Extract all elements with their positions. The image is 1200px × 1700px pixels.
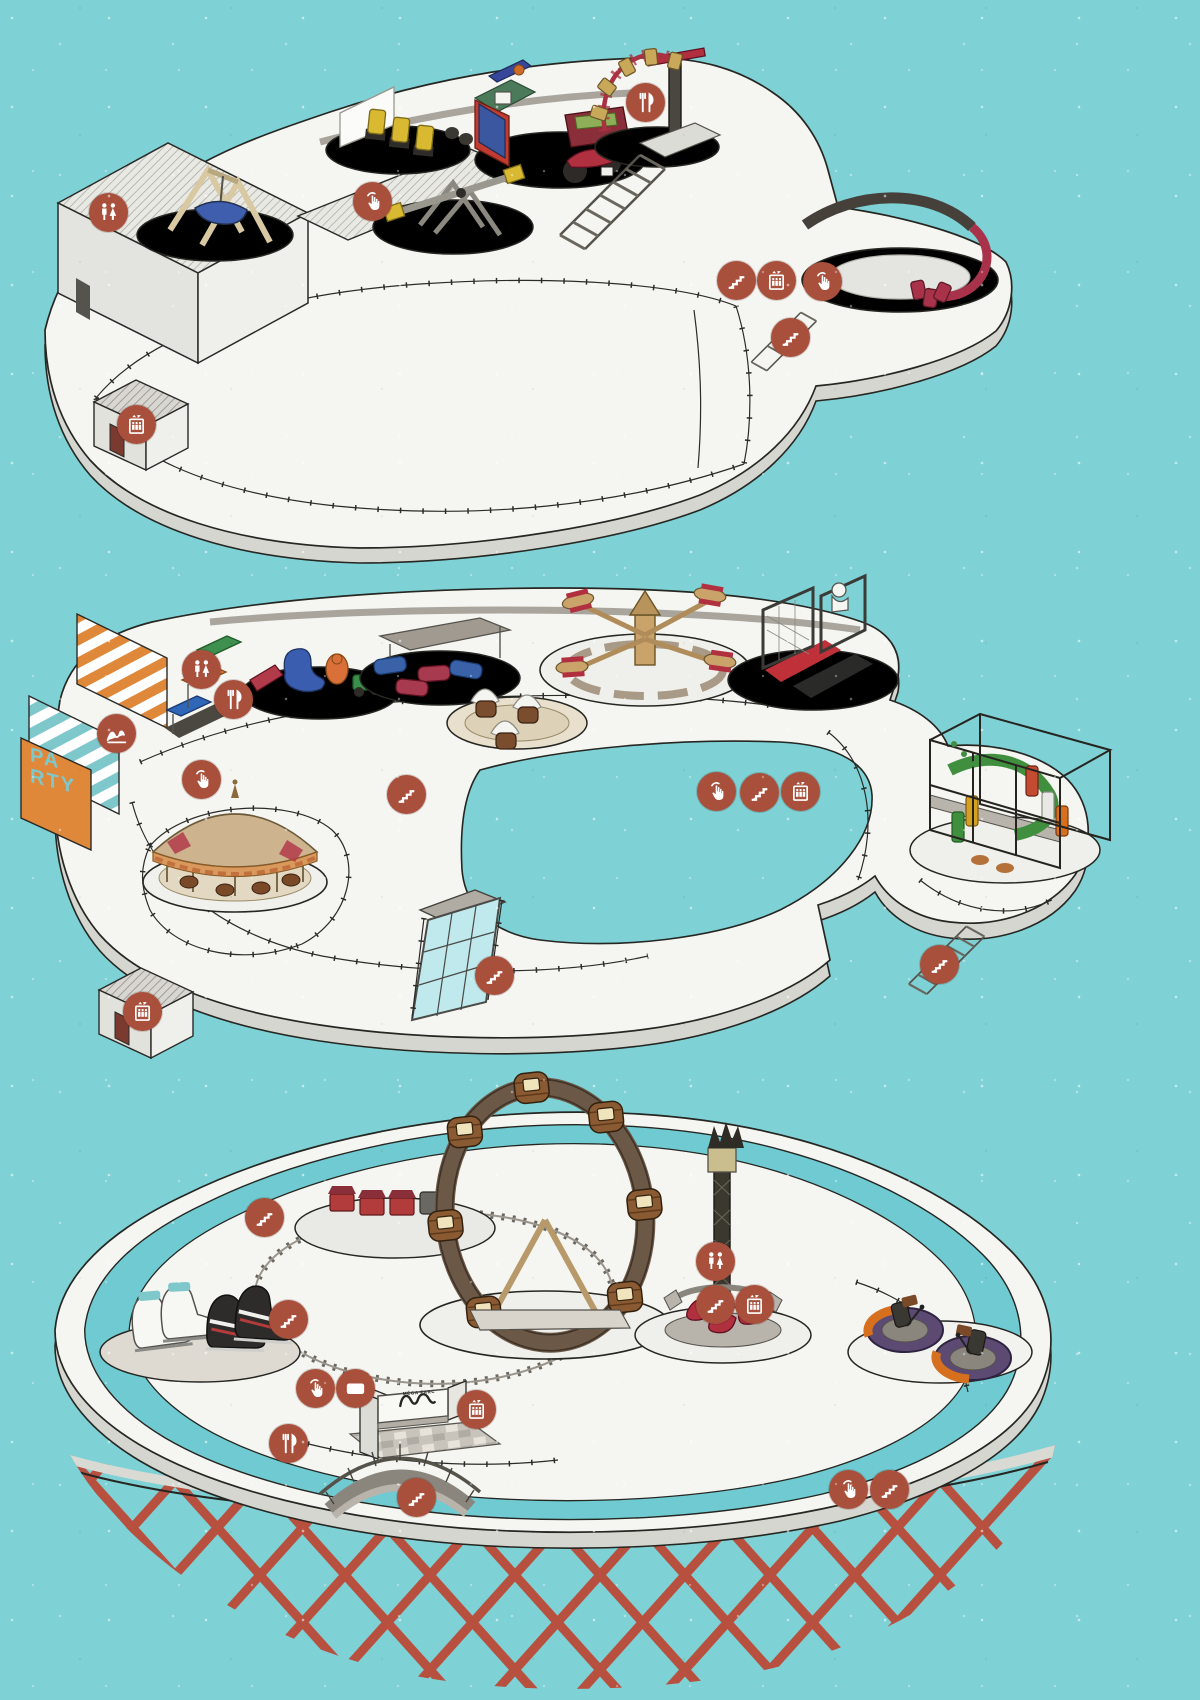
middle-level-island: [21, 576, 1110, 1058]
elevator-badge[interactable]: [117, 405, 156, 444]
touch-badge[interactable]: [829, 1470, 868, 1509]
touch-badge[interactable]: [296, 1369, 335, 1408]
restrooms-badge[interactable]: [696, 1242, 735, 1281]
touch-badge[interactable]: [803, 262, 842, 301]
plane-spinner-ride: [540, 582, 750, 706]
elevator-badge[interactable]: [735, 1285, 774, 1324]
food-badge[interactable]: [214, 680, 253, 719]
restrooms-badge[interactable]: [182, 650, 221, 689]
ticket-badge[interactable]: [336, 1369, 375, 1408]
stairs-badge[interactable]: [870, 1470, 909, 1509]
elevator-badge[interactable]: [457, 1390, 496, 1429]
stairs-badge[interactable]: [269, 1300, 308, 1339]
elevator-badge[interactable]: [781, 772, 820, 811]
park-map-canvas: PA RTY MÉGA PARC: [0, 0, 1200, 1700]
restrooms-badge[interactable]: [89, 193, 128, 232]
mega-parc-logo-icon: [395, 1389, 438, 1410]
stairs-badge[interactable]: [245, 1198, 284, 1237]
stairs-badge[interactable]: [717, 261, 756, 300]
coaster-badge[interactable]: [97, 714, 136, 753]
stairs-badge[interactable]: [387, 775, 426, 814]
stairs-badge[interactable]: [920, 945, 959, 984]
elevator-badge[interactable]: [757, 261, 796, 300]
map-illustration: [0, 0, 1200, 1700]
food-badge[interactable]: [626, 83, 665, 122]
stairs-badge[interactable]: [475, 956, 514, 995]
upper-level-island: [45, 48, 1012, 563]
touch-badge[interactable]: [182, 760, 221, 799]
touch-badge[interactable]: [353, 182, 392, 221]
touch-badge[interactable]: [697, 772, 736, 811]
stairs-badge[interactable]: [740, 773, 779, 812]
elevator-badge[interactable]: [123, 992, 162, 1031]
stairs-badge[interactable]: [397, 1478, 436, 1517]
stairs-badge[interactable]: [696, 1285, 735, 1324]
mega-parc-billboard: MÉGA PARC: [395, 1388, 445, 1425]
stairs-badge[interactable]: [771, 318, 810, 357]
food-badge[interactable]: [269, 1424, 308, 1463]
